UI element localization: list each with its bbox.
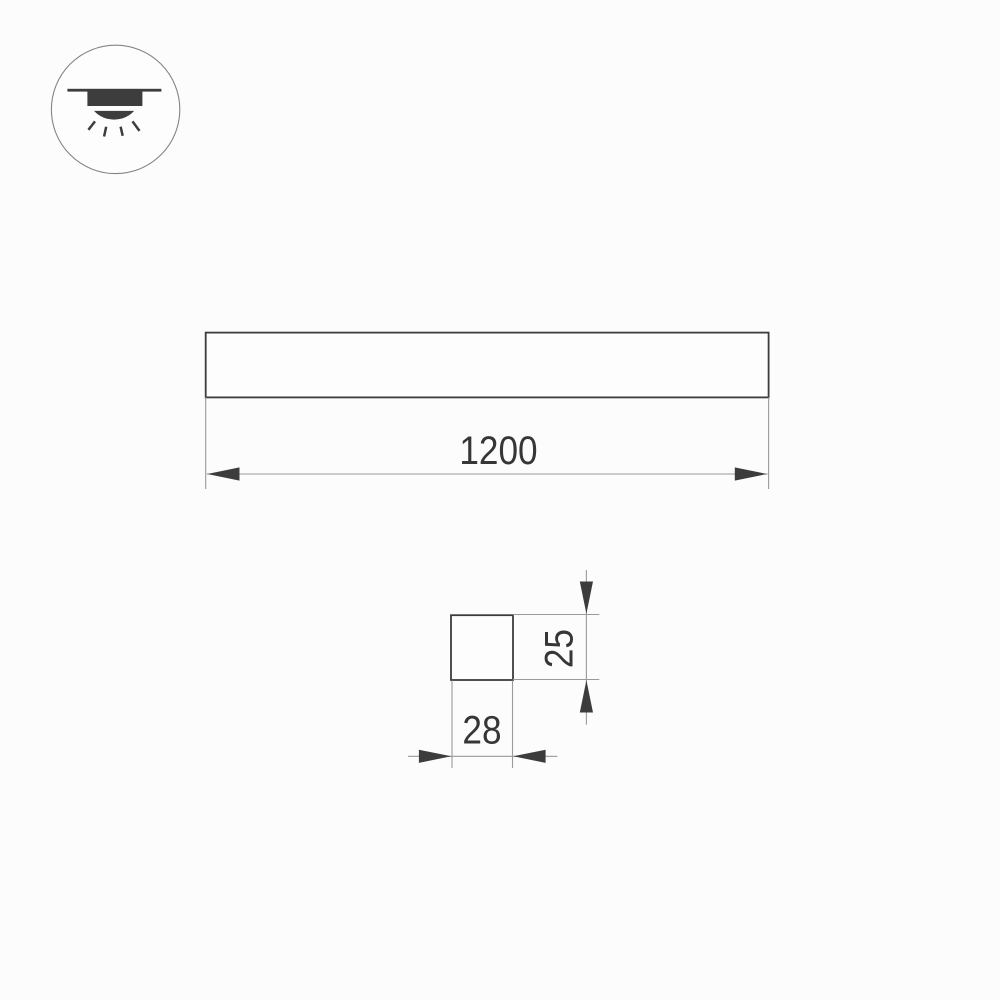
svg-text:25: 25: [536, 629, 581, 668]
svg-text:28: 28: [462, 708, 501, 753]
svg-text:1200: 1200: [459, 428, 537, 473]
